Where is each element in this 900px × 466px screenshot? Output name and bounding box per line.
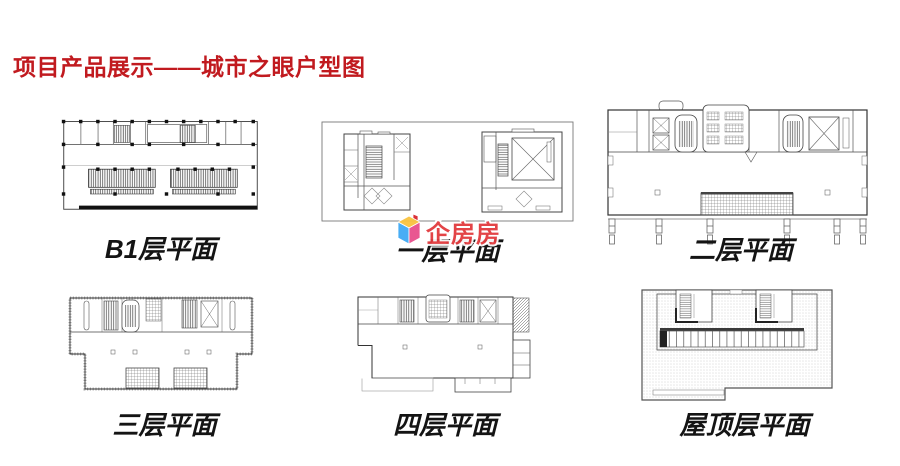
- page-title: 项目产品展示——城市之眼户型图: [13, 48, 366, 82]
- floorplan-f4-label: 四层平面: [350, 412, 540, 439]
- figure-f2: 二层平面: [597, 92, 885, 264]
- floorplan-f1-drawing: [320, 120, 575, 223]
- floorplan-f1-label: 一层平面: [320, 238, 575, 265]
- floorplan-f2-label: 二层平面: [597, 237, 885, 264]
- roof-louver-strip: [660, 328, 804, 347]
- floorplan-f3-label: 三层平面: [62, 412, 267, 439]
- figure-f4: 四层平面: [350, 292, 540, 439]
- figure-f3: 三层平面: [62, 292, 267, 439]
- floorplan-roof-label: 屋顶层平面: [654, 412, 835, 439]
- figure-f1: 一层平面: [320, 120, 575, 265]
- figure-roof: 屋顶层平面: [640, 288, 835, 439]
- floorplan-f4-drawing: [350, 292, 540, 395]
- f1-right-tower: [482, 129, 562, 212]
- floorplan-f2-drawing: [597, 92, 885, 245]
- roof-stair-bulkhead-right: [756, 290, 792, 322]
- f1-left-tower: [344, 131, 410, 210]
- floorplan-b1-label: B1层平面: [58, 236, 263, 263]
- floorplan-roof-drawing: [640, 288, 835, 403]
- floorplan-b1-drawing: [58, 112, 263, 219]
- floorplan-f3-drawing: [62, 292, 267, 395]
- roof-stair-bulkhead-left: [676, 290, 712, 322]
- figure-b1: B1层平面: [58, 112, 263, 263]
